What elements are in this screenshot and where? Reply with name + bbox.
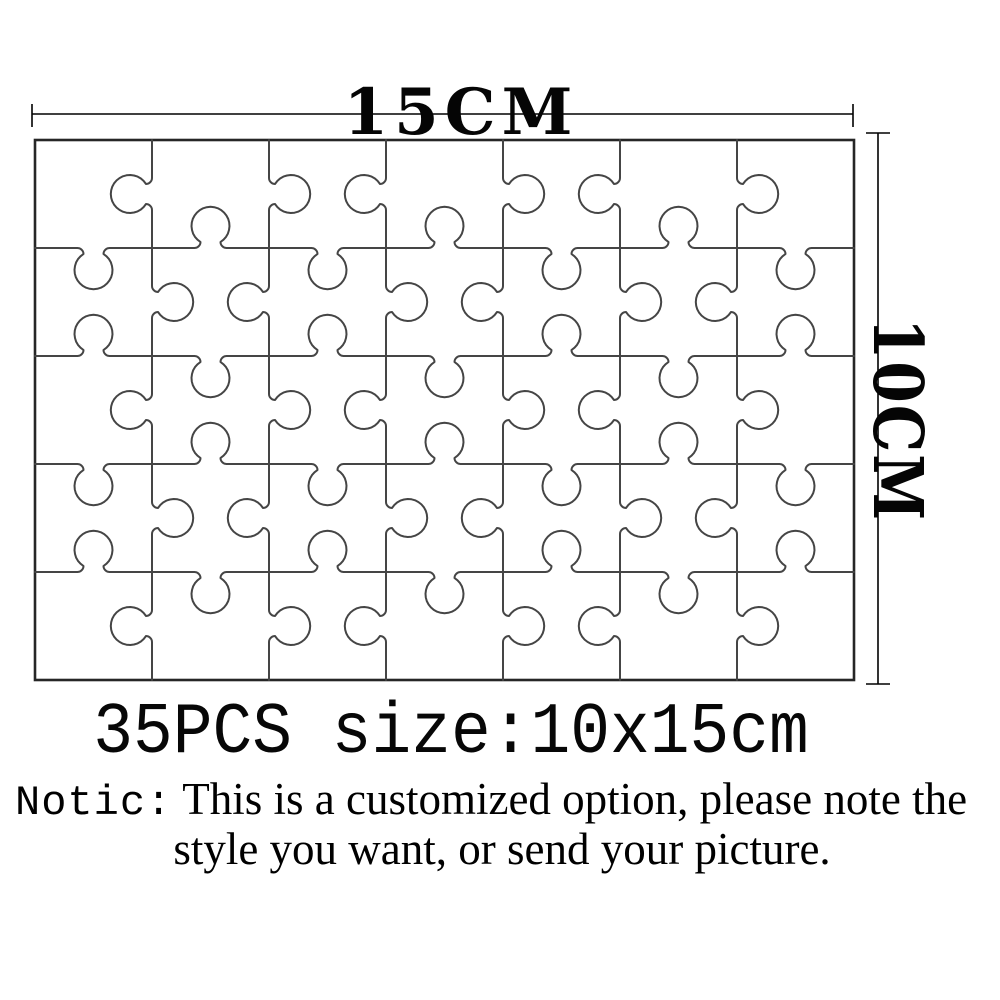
puzzle-edge [620,464,661,572]
puzzle-edge [620,207,737,248]
puzzle-edge [35,531,152,572]
puzzle-edge [269,531,386,572]
notice-text-line1: This is a customized option, please note… [182,774,967,824]
puzzle-edge [269,572,310,680]
puzzle-edge [386,572,503,613]
puzzle-edge [111,572,152,680]
puzzle-edge [35,248,152,289]
puzzle-edge [620,572,737,613]
puzzle-edge [737,572,778,680]
puzzle-piece-edges [35,140,854,680]
puzzle-border [35,140,854,680]
puzzle-edge [152,572,269,613]
puzzle-product-diagram: 15CM 10CM 35PCS size:10x15cm Notic:This … [0,0,1000,1000]
puzzle-edge [386,356,503,397]
puzzle-edge [579,356,620,464]
puzzle-edge [35,464,152,505]
puzzle-edge [345,572,386,680]
puzzle-edge [228,464,269,572]
notice-text-line2: style you want, or send your picture. [173,827,830,872]
puzzle-edge [386,423,503,464]
puzzle-edge [503,531,620,572]
puzzle-edge [620,423,737,464]
puzzle-edge [269,464,386,505]
puzzle-edge [386,464,427,572]
puzzle-edge [503,315,620,356]
puzzle-edge [111,140,152,248]
puzzle-edge [269,248,386,289]
puzzle-edge [620,248,661,356]
size-caption: 35PCS size:10x15cm [93,697,809,769]
puzzle-edge [737,356,778,464]
puzzle-edge [462,248,503,356]
puzzle-edge [462,464,503,572]
puzzle-edge [386,248,427,356]
puzzle-edge [620,356,737,397]
puzzle-edge [269,356,310,464]
puzzle-edge [152,464,193,572]
notice-line-1: Notic:This is a customized option, pleas… [15,777,967,824]
puzzle-edge [503,464,620,505]
puzzle-edge [503,572,544,680]
puzzle-edge [152,248,193,356]
puzzle-edge [737,140,778,248]
width-dimension-label: 15CM [344,81,579,145]
puzzle-edge [152,207,269,248]
puzzle-edge [696,248,737,356]
puzzle-edge [345,140,386,248]
puzzle-edge [696,464,737,572]
puzzle-edge [737,464,854,505]
puzzle-edge [111,356,152,464]
notice-prefix: Notic: [15,779,172,827]
puzzle-edge [579,140,620,248]
puzzle-edge [503,140,544,248]
height-dimension-label: 10CM [863,318,931,522]
puzzle-edge [579,572,620,680]
puzzle-edge [269,140,310,248]
puzzle-edge [737,315,854,356]
puzzle-edge [737,248,854,289]
puzzle-edge [345,356,386,464]
puzzle-edge [503,248,620,289]
puzzle-edge [228,248,269,356]
puzzle-edge [152,423,269,464]
puzzle-edge [737,531,854,572]
puzzle-edge [386,207,503,248]
puzzle-edge [35,315,152,356]
puzzle-edge [152,356,269,397]
puzzle-edge [269,315,386,356]
puzzle-edge [503,356,544,464]
